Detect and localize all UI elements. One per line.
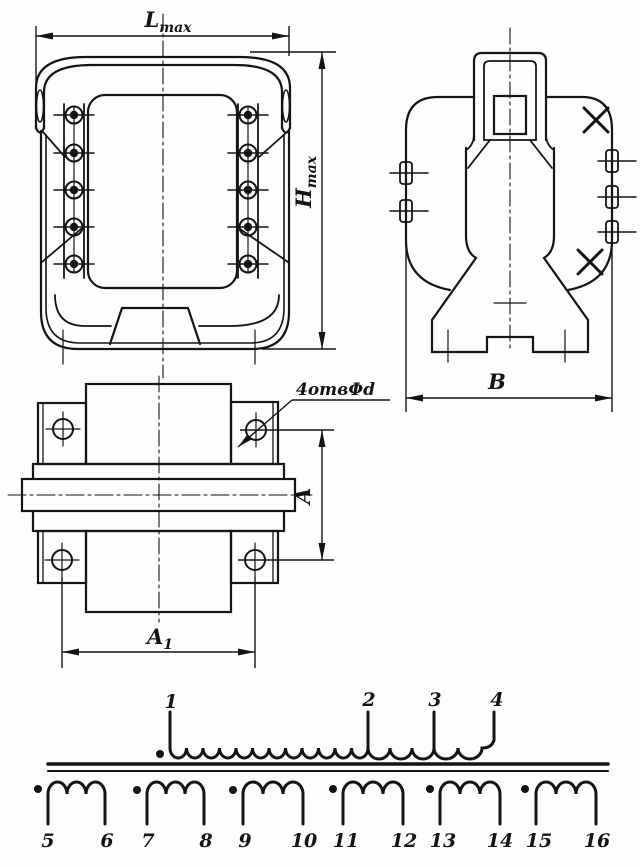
side-strap-inner: [484, 61, 536, 140]
primary-winding: [156, 712, 494, 759]
rivet-x-bottom: [578, 250, 602, 274]
lmax-label: Lmax: [144, 7, 193, 36]
b-arrow-right: [595, 395, 612, 402]
side-strap-flare-right: [546, 134, 554, 150]
lmax-arrow-right: [272, 33, 289, 40]
terminal-label-12: 12: [391, 830, 417, 852]
tap-label-3: 3: [428, 689, 441, 711]
tap-label-4: 4: [490, 689, 503, 711]
secondary-dot-6: [521, 785, 529, 793]
terminal-label-14: 14: [487, 830, 513, 852]
secondary-dot-4: [329, 785, 337, 793]
shell-ledge-left: [55, 295, 111, 326]
secondary-coil-2: [147, 782, 204, 824]
terminal-label-8: 8: [198, 830, 212, 852]
terminal-label-9: 9: [238, 830, 251, 852]
terminal-label-13: 13: [430, 830, 456, 852]
strap-eyelet-right: [283, 90, 290, 122]
front-view: [36, 14, 290, 378]
tap-label-1: 1: [164, 691, 177, 713]
a-arrow-top: [319, 430, 326, 447]
terminal-label-7: 7: [141, 830, 154, 852]
a1-arrow-left: [62, 649, 79, 656]
shell-outer: [41, 131, 289, 349]
secondary-coil-3: [243, 782, 303, 824]
strap-eyelet-left: [37, 90, 44, 122]
winding-schematic: [34, 712, 608, 824]
dimension-hole-pitch-horizontal: [62, 577, 255, 668]
secondary-dot-3: [229, 786, 237, 794]
side-body-top-right: [546, 97, 612, 240]
a-label: A: [290, 488, 315, 506]
transformer-drawing: Lmax Hmax: [0, 0, 640, 867]
flange-top-left: [38, 403, 86, 464]
secondary-coil-5: [440, 782, 500, 824]
lmax-arrow-left: [36, 33, 53, 40]
rivet-x-top: [584, 108, 608, 132]
terminal-label-11: 11: [333, 830, 359, 852]
bottom-boss: [110, 308, 200, 344]
holes-note-label: 4отвΦd: [296, 380, 375, 400]
shell-ledge-right: [199, 295, 279, 326]
side-view: [390, 28, 636, 362]
top-view: [8, 376, 312, 622]
hmax-arrow-bottom: [319, 332, 326, 349]
secondary-dot-2: [133, 786, 141, 794]
terminal-label-6: 6: [100, 830, 113, 852]
terminal-label-10: 10: [291, 830, 317, 852]
terminal-label-15: 15: [526, 830, 552, 852]
side-body-top-left: [406, 97, 474, 240]
holes-note: [238, 400, 390, 447]
a1-arrow-right: [238, 649, 255, 656]
chamfer-bottom-right: [240, 229, 288, 262]
terminal-label-5: 5: [41, 830, 54, 852]
secondary-coil-6: [536, 782, 596, 824]
b-arrow-left: [406, 395, 423, 402]
side-strap-flare-left: [466, 134, 474, 150]
secondary-coil-1: [48, 782, 105, 824]
tap-label-2: 2: [361, 689, 375, 711]
primary-coil: [170, 712, 494, 759]
side-lugs-left: [390, 162, 428, 222]
terminal-label-16: 16: [584, 830, 610, 852]
hmax-arrow-top: [319, 52, 326, 69]
hmax-label: Hmax: [291, 155, 320, 209]
secondary-dot-5: [426, 785, 434, 793]
secondary-coil-4: [343, 782, 403, 824]
primary-polarity-dot: [156, 750, 164, 758]
secondary-dot-1: [34, 785, 42, 793]
secondary-windings: [34, 782, 596, 824]
a-arrow-bottom: [319, 543, 326, 560]
side-body-corner-left: [406, 240, 450, 290]
side-body-corner-right: [568, 240, 612, 290]
side-lugs-right: [598, 150, 636, 243]
chamfer-bottom-left: [42, 229, 81, 262]
b-label: В: [487, 369, 506, 394]
a1-label: A1: [145, 624, 173, 653]
drawing-sheet: Lmax Hmax: [0, 0, 640, 867]
